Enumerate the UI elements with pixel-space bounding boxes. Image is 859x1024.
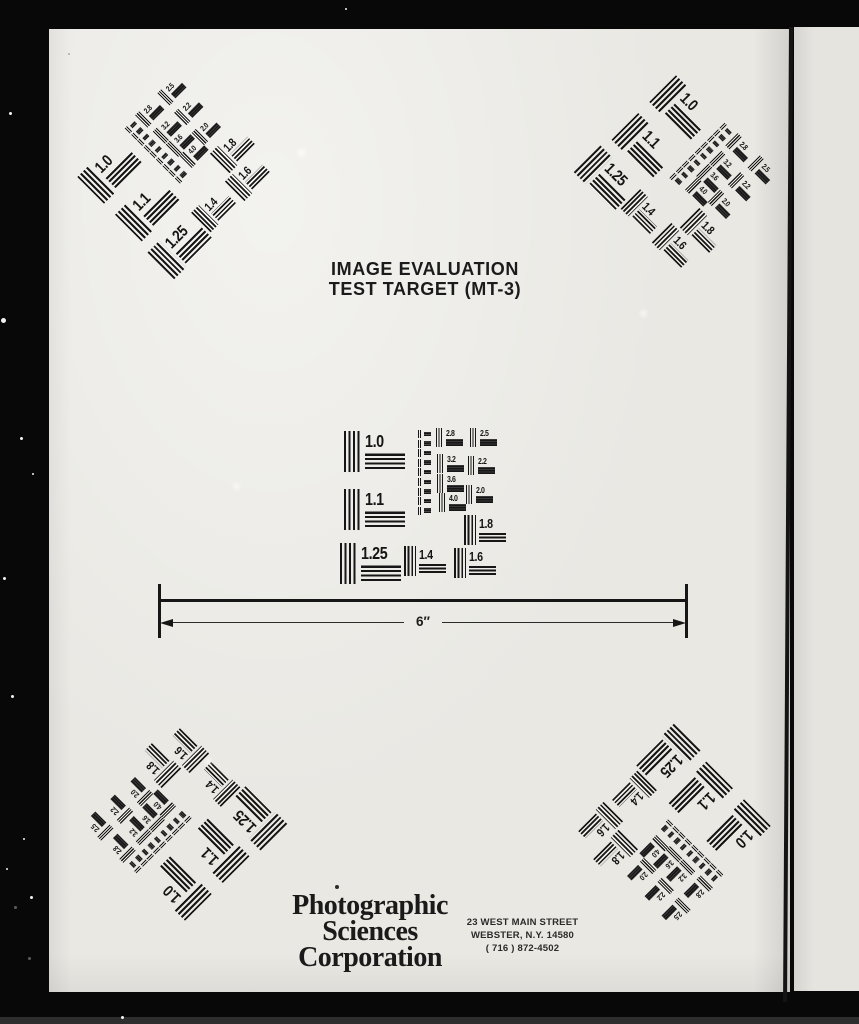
pattern-label: 1.25: [361, 545, 394, 563]
vertical-bars: [344, 489, 362, 530]
test-pattern-cluster-center: 1.01.11.251.41.61.82.02.22.52.83.23.64.0: [330, 417, 510, 569]
pattern-label: 1.4: [419, 548, 441, 561]
pattern-label: 1.8: [479, 517, 501, 530]
scale-line: [161, 599, 685, 602]
dust-speck: [1, 318, 6, 323]
vertical-bars: [466, 485, 473, 504]
pattern-label: 3.6: [447, 475, 461, 484]
micro-pattern: [418, 440, 431, 448]
paper-bright-spot: [233, 483, 240, 490]
dust-speck: [345, 8, 347, 10]
dust-speck: [68, 53, 70, 55]
resolution-pattern-1.1: 1.1: [344, 489, 405, 530]
horizontal-bars: [447, 485, 464, 492]
resolution-pattern-2.5: 2.5: [157, 76, 187, 106]
arrowhead-right-icon: [673, 619, 686, 627]
resolution-pattern-3.6: 3.6: [437, 474, 464, 493]
pattern-label: 2.0: [476, 486, 490, 495]
pattern-label: 2.2: [478, 457, 492, 466]
horizontal-bars: [365, 511, 405, 527]
pattern-label: 2.5: [480, 429, 494, 438]
logo-line-3: Corporation: [250, 945, 490, 971]
horizontal-bars: [419, 562, 446, 573]
micro-pattern: [418, 459, 431, 467]
vertical-bars: [464, 515, 476, 545]
micro-pattern: [418, 478, 431, 486]
resolution-pattern-1.8: 1.8: [464, 515, 506, 545]
vertical-bars: [436, 428, 443, 447]
title-line-2: TEST TARGET (MT-3): [230, 280, 620, 300]
address-line-3: ( 716 ) 872-4502: [455, 942, 590, 955]
dust-speck: [20, 437, 23, 440]
arrow-line-left: [173, 622, 404, 624]
ink-dot: [335, 885, 339, 889]
resolution-pattern-2.8: 2.8: [436, 428, 463, 447]
scanned-test-target-page: IMAGE EVALUATION TEST TARGET (MT-3) 6″ P…: [0, 0, 859, 1024]
scale-dimension-arrow: 6″: [160, 615, 686, 630]
arrowhead-left-icon: [160, 619, 173, 627]
pattern-label: 1.1: [365, 491, 398, 509]
title-line-1: IMAGE EVALUATION: [230, 260, 620, 280]
dust-speck: [6, 868, 8, 870]
horizontal-bars: [447, 465, 464, 472]
dust-speck: [9, 112, 12, 115]
resolution-pattern-4.0: 4.0: [439, 493, 466, 512]
micro-pattern: [418, 449, 431, 457]
dust-speck: [32, 473, 34, 475]
micro-pattern: [418, 507, 431, 515]
pattern-label: 3.2: [447, 455, 461, 464]
resolution-pattern-1.6: 1.6: [454, 548, 496, 578]
resolution-pattern-1.0: 1.0: [344, 431, 405, 472]
horizontal-bars: [476, 496, 493, 503]
company-logo: Photographic Sciences Corporation: [250, 893, 490, 971]
horizontal-bars: [365, 453, 405, 469]
horizontal-bars: [469, 564, 496, 575]
resolution-pattern-2.2: 2.2: [644, 878, 674, 908]
company-address: 23 WEST MAIN STREET WEBSTER, N.Y. 14580 …: [455, 916, 590, 955]
paper-bright-spot: [640, 310, 647, 317]
resolution-pattern-1.0: 1.0: [77, 137, 143, 203]
six-inch-scale: 6″: [158, 584, 688, 640]
address-line-1: 23 WEST MAIN STREET: [455, 916, 590, 929]
vertical-bars: [470, 428, 477, 447]
horizontal-bars: [361, 565, 401, 581]
vertical-bars: [468, 456, 475, 475]
micro-pattern: [418, 488, 431, 496]
pattern-label: 2.8: [446, 429, 460, 438]
address-line-2: WEBSTER, N.Y. 14580: [455, 929, 590, 942]
pattern-label: 4.0: [449, 494, 463, 503]
resolution-pattern-1.25: 1.25: [340, 543, 401, 584]
dust-speck: [14, 906, 17, 909]
dust-speck: [3, 577, 6, 580]
arrow-line-right: [442, 622, 673, 624]
dust-speck: [23, 838, 25, 840]
resolution-pattern-2.2: 2.2: [728, 172, 758, 202]
pattern-label: 1.6: [469, 550, 491, 563]
resolution-pattern-2.5: 2.5: [470, 428, 497, 447]
micro-pattern: [418, 468, 431, 476]
vertical-bars: [340, 543, 358, 584]
resolution-pattern-3.2: 3.2: [437, 454, 464, 473]
dust-speck: [28, 957, 31, 960]
horizontal-bars: [479, 531, 506, 542]
paper-bright-spot: [297, 148, 306, 157]
resolution-pattern-2.5: 2.5: [747, 155, 777, 185]
vertical-bars: [454, 548, 466, 578]
resolution-pattern-2.5: 2.5: [661, 897, 691, 927]
resolution-pattern-2.2: 2.2: [174, 95, 204, 125]
resolution-pattern-2.8: 2.8: [683, 875, 713, 905]
dust-speck: [30, 896, 33, 899]
micro-pattern: [418, 497, 431, 505]
vertical-bars: [344, 431, 362, 472]
resolution-pattern-1.4: 1.4: [404, 546, 446, 576]
resolution-pattern-2.0: 2.0: [466, 485, 493, 504]
vertical-bars: [404, 546, 416, 576]
micro-pattern: [418, 430, 431, 438]
horizontal-bars: [446, 439, 463, 446]
resolution-pattern-2.5: 2.5: [84, 811, 114, 841]
dust-speck: [410, 37, 412, 39]
pattern-label: 1.0: [365, 433, 398, 451]
vertical-bars: [437, 454, 444, 473]
resolution-pattern-2.2: 2.2: [468, 456, 495, 475]
horizontal-bars: [480, 439, 497, 446]
target-title: IMAGE EVALUATION TEST TARGET (MT-3): [230, 260, 620, 299]
vertical-bars: [439, 493, 446, 512]
vertical-bars: [437, 474, 444, 493]
scale-measurement-label: 6″: [404, 614, 442, 629]
dust-speck: [121, 1016, 124, 1019]
horizontal-bars: [449, 504, 466, 511]
paper-bright-spot: [205, 758, 212, 765]
dust-speck: [11, 695, 14, 698]
scan-bottom-strip: [0, 1017, 859, 1024]
adjacent-page-edge: [794, 27, 859, 991]
horizontal-bars: [478, 467, 495, 474]
